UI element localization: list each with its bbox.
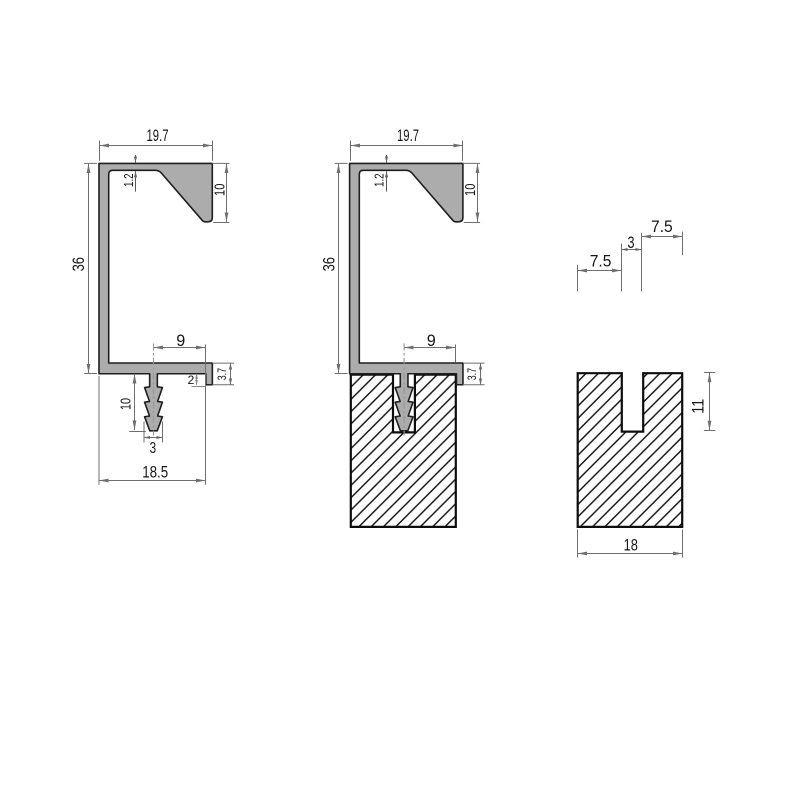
svg-text:36: 36 <box>321 257 339 271</box>
svg-text:3: 3 <box>150 440 157 457</box>
svg-text:18: 18 <box>624 537 638 555</box>
svg-text:19.7: 19.7 <box>147 127 169 145</box>
svg-text:11: 11 <box>689 399 707 414</box>
svg-text:7.5: 7.5 <box>651 218 673 236</box>
svg-text:9: 9 <box>176 332 185 350</box>
svg-text:3: 3 <box>628 234 635 252</box>
svg-text:10: 10 <box>212 184 228 196</box>
svg-text:36: 36 <box>70 257 88 271</box>
svg-text:3.7: 3.7 <box>467 368 479 380</box>
svg-text:3.7: 3.7 <box>217 368 229 380</box>
svg-text:2: 2 <box>188 373 195 387</box>
svg-text:1.2: 1.2 <box>372 173 386 187</box>
svg-text:10: 10 <box>463 184 479 196</box>
svg-text:10: 10 <box>118 398 135 410</box>
svg-text:18.5: 18.5 <box>142 463 168 481</box>
svg-text:9: 9 <box>427 332 436 350</box>
svg-text:1.2: 1.2 <box>122 173 136 187</box>
svg-text:7.5: 7.5 <box>590 253 612 271</box>
svg-text:19.7: 19.7 <box>397 127 419 145</box>
